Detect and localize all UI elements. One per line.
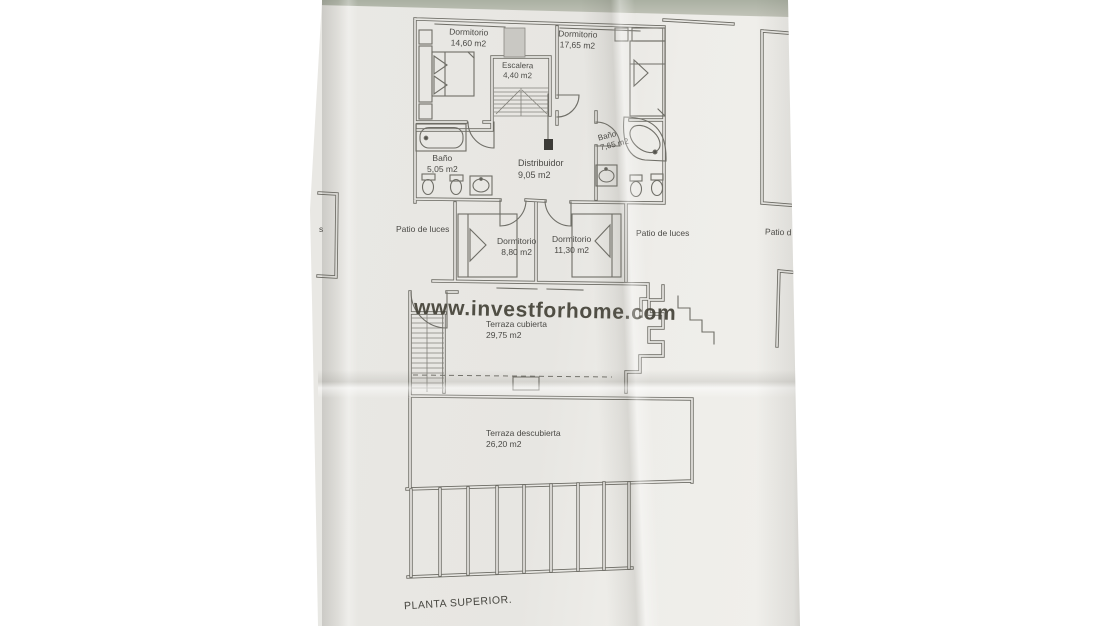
terrace-stairs-icon: [411, 313, 444, 392]
room-area: 29,75 m2: [486, 330, 521, 340]
label-dormitorio-2: Dormitorio 17,65 m2: [558, 28, 598, 51]
room-name: Dormitorio: [497, 236, 536, 246]
sink-icon: [470, 176, 492, 195]
room-name: Dormitorio: [558, 28, 598, 39]
bidet-icon: [450, 175, 463, 195]
railing: [411, 483, 629, 576]
label-patio-right: Patio de luces: [636, 228, 689, 239]
bed-icon-dormitorio-2: [615, 28, 665, 116]
room-area: 8,80 m2: [501, 247, 532, 257]
toilet-icon-2: [630, 175, 642, 197]
sink-icon-2: [596, 165, 617, 186]
room-area: 26,20 m2: [486, 439, 521, 449]
label-dormitorio-1: Dormitorio 14,60 m2: [449, 26, 489, 49]
room-name: Baño: [432, 153, 452, 163]
label-bano-1: Baño 5,05 m2: [427, 153, 458, 175]
room-name: Distribuidor: [518, 158, 564, 168]
paper-sheet: Dormitorio 14,60 m2 Dormitorio 17,65 m2 …: [0, 0, 1110, 626]
column-fill: [544, 139, 553, 150]
room-area: 5,05 m2: [427, 164, 458, 174]
label-dormitorio-4: Dormitorio 11,30 m2: [552, 234, 591, 256]
bidet-icon-2: [651, 174, 663, 196]
bathtub-icon: [416, 124, 466, 151]
room-area: 14,60 m2: [451, 38, 487, 49]
label-patio-far-right: Patio d: [765, 227, 792, 239]
label-left-edge-partial: s: [319, 224, 323, 235]
corner-bathtub-icon: [624, 117, 667, 161]
room-area: 11,30 m2: [554, 245, 589, 255]
room-name: Escalera: [502, 61, 533, 71]
label-patio-left: Patio de luces: [396, 224, 449, 235]
room-name: Dormitorio: [552, 234, 591, 244]
label-distribuidor: Distribuidor 9,05 m2: [518, 158, 564, 181]
room-area: 9,05 m2: [518, 170, 551, 180]
toilet-icon: [422, 174, 435, 195]
label-dormitorio-3: Dormitorio 8,80 m2: [497, 236, 536, 258]
room-area: 4,40 m2: [503, 71, 532, 81]
room-name: Terraza descubierta: [486, 428, 561, 438]
room-name: Dormitorio: [449, 26, 488, 37]
label-escalera: Escalera 4,40 m2: [502, 61, 533, 82]
label-terraza-descubierta: Terraza descubierta 26,20 m2: [486, 428, 561, 450]
walls: [318, 19, 800, 577]
room-area: 17,65 m2: [560, 39, 596, 50]
floorplan-photo: Dormitorio 14,60 m2 Dormitorio 17,65 m2 …: [0, 0, 1110, 626]
